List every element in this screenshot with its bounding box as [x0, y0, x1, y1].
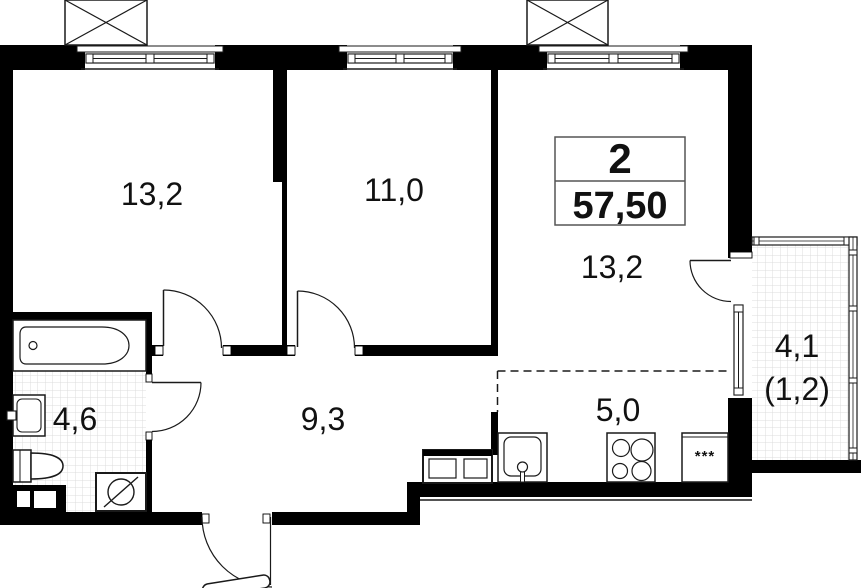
unit-info-box: 2 57,50 [555, 135, 685, 227]
unit-room-count: 2 [608, 135, 631, 182]
window-bracket [348, 54, 355, 63]
wall-kitchen-stub [491, 412, 498, 455]
wall-balcony-bottom [752, 460, 861, 473]
window-sill-outer [77, 46, 223, 52]
living-area-label: 13,2 [581, 249, 643, 285]
bathroom-area-label: 4,6 [53, 401, 97, 437]
bathroom-duct-niche-2 [34, 491, 56, 508]
window-bedroom2 [339, 45, 461, 70]
doorframe-entrance-right [263, 514, 270, 523]
window-bracket [734, 388, 743, 395]
window-bracket [86, 54, 93, 63]
balcony-area-label: 4,1 [775, 328, 819, 364]
toilet-tank-icon [13, 450, 31, 482]
wall-bottom-hall-2 [272, 512, 420, 525]
hallway-area-label: 9,3 [301, 401, 345, 437]
doorframe-bathroom-bottom [146, 432, 152, 440]
doorframe-bedroom1-left [155, 346, 163, 355]
wall-bathroom-top [0, 312, 152, 320]
window-living-balcony [728, 302, 752, 398]
bathtub-icon [13, 320, 146, 371]
duct-box-top [423, 450, 492, 456]
doorframe-balcony [730, 252, 752, 258]
doorframe-entrance-left [202, 514, 209, 523]
doorframe-bedroom2-right [355, 346, 363, 355]
wall-right-lower [728, 398, 752, 497]
wall-bottom-hall-1 [0, 512, 202, 525]
window-living [539, 45, 688, 70]
kitchen-faucet [518, 462, 528, 472]
wall-bottom-kitchen [407, 482, 752, 497]
floor-plan: *** [0, 0, 861, 588]
wall-bedroom-divider-thick [273, 70, 287, 182]
wall-living-divider [491, 70, 498, 356]
doorframe-bedroom2-left [287, 346, 295, 355]
window-mullion [146, 54, 154, 63]
window-bracket [207, 54, 214, 63]
bedroom2-area-label: 11,0 [364, 172, 424, 208]
doorframe-bathroom-top [146, 374, 152, 382]
window-sill-outer [339, 46, 461, 52]
window-bracket [734, 305, 743, 312]
balcony-mullion [849, 378, 857, 383]
floor-plan-page: *** [0, 0, 861, 588]
wall-right-upper [728, 45, 752, 258]
fridge-marker: *** [695, 448, 716, 465]
wall-top-2 [215, 45, 347, 70]
wall-left [0, 45, 13, 525]
bedroom1-area-label: 13,2 [121, 176, 183, 212]
wall-top-3 [453, 45, 547, 70]
wall-hall-top-3 [355, 345, 498, 356]
window-bracket [445, 54, 452, 63]
balcony-mullion [754, 237, 759, 245]
balcony-mullion [849, 306, 857, 311]
balcony-mullion [844, 237, 849, 245]
window-mullion [396, 54, 404, 63]
wall-hall-top-2 [223, 345, 295, 356]
balcony-mullion [849, 250, 857, 255]
washbasin-faucet [7, 411, 16, 420]
balcony-weighted-area-label: (1,2) [764, 371, 830, 407]
window-bracket [548, 54, 555, 63]
window-bedroom1 [77, 45, 223, 70]
window-mullion [609, 54, 618, 63]
window-bracket [672, 54, 679, 63]
kitchen-area-label: 5,0 [596, 392, 640, 428]
wall-bedroom-divider-thin [282, 182, 287, 345]
window-sill-outer [539, 46, 688, 52]
doorframe-bedroom1-right [223, 346, 231, 355]
balcony-mullion [849, 448, 857, 453]
unit-total-area: 57,50 [572, 185, 667, 227]
bathroom-duct-niche-1 [17, 491, 30, 507]
kitchen-faucet-stem [521, 472, 525, 482]
